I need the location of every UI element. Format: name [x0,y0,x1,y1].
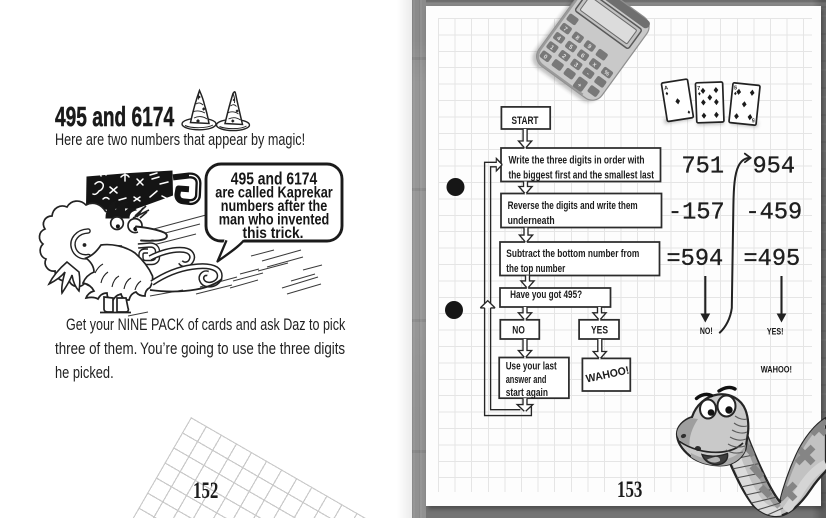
svg-text:7: 7 [697,86,700,92]
svg-text:NO: NO [512,324,525,336]
svg-text:Use your last: Use your last [506,360,557,372]
svg-text:5: 5 [734,85,738,91]
svg-text:NO!: NO! [700,326,713,337]
svg-text:underneath: underneath [508,215,555,227]
svg-text:Reverse the digits and write t: Reverse the digits and write them [508,200,638,212]
svg-text:5: 5 [752,116,756,122]
svg-text:YES!: YES! [767,326,784,337]
svg-text:=594: =594 [667,246,724,273]
svg-text:Subtract the bottom number fro: Subtract the bottom number from [506,248,639,260]
svg-text:751: 751 [682,154,724,181]
svg-text:the top number: the top number [506,263,566,275]
svg-text:WAHOO!: WAHOO! [761,365,792,376]
svg-text:YES: YES [591,324,608,336]
svg-text:START: START [512,115,539,127]
svg-text:Write the three digits in orde: Write the three digits in order with [509,154,645,166]
svg-text:the biggest first and the smal: the biggest first and the smallest last [509,169,655,181]
svg-text:-459: -459 [746,200,803,227]
svg-text:954: 954 [753,154,795,181]
svg-text:=495: =495 [744,246,801,273]
svg-text:answer and: answer and [506,374,547,386]
svg-text:start again: start again [506,387,549,399]
svg-text:-157: -157 [668,200,725,227]
svg-text:Have you got 495?: Have you got 495? [510,289,582,301]
